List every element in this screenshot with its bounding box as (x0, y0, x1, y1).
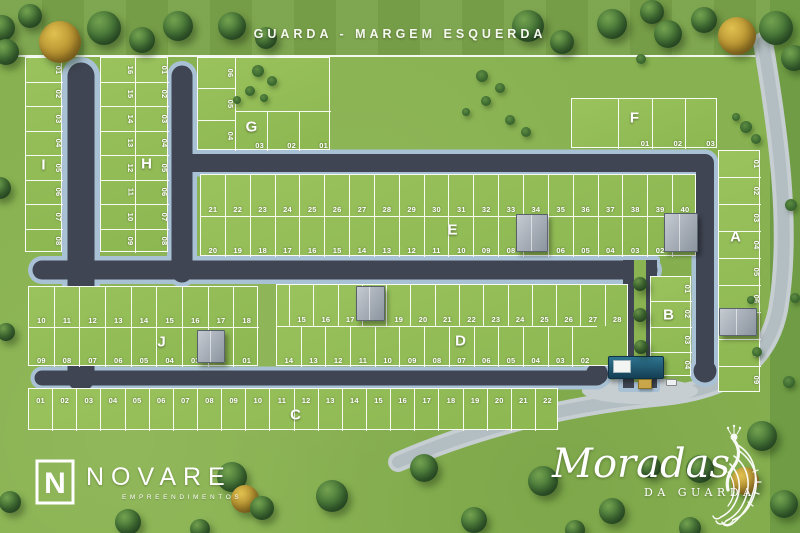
lot-number: 23 (258, 205, 267, 214)
lot-number: 21 (519, 396, 528, 405)
lot: 03 (76, 389, 100, 431)
novare-logo-icon: N (34, 458, 76, 506)
lot-number: 37 (606, 205, 615, 214)
lot-number: 04 (109, 396, 118, 405)
lot-number: 16 (191, 316, 200, 325)
lot: 05 (498, 327, 523, 367)
lot: 16 (390, 389, 414, 431)
lot-number: 25 (308, 205, 317, 214)
lot: 05 (719, 258, 761, 285)
lot: 06 (26, 180, 63, 205)
block-E: 2122232425262728293031323334353637383940… (200, 174, 696, 256)
lot-row: 1615141312111009 (101, 58, 135, 253)
lot-number: 08 (54, 237, 63, 246)
bush (462, 108, 470, 116)
tree (759, 11, 793, 45)
block-I: 0102030405060708I (25, 57, 62, 252)
lot: 15 (366, 389, 390, 431)
lot-row: 060504 (198, 58, 236, 151)
lot: 15 (324, 217, 349, 257)
lot-number: 20 (209, 246, 218, 255)
lot: 28 (374, 175, 399, 216)
house (719, 308, 757, 336)
lot: 09 (473, 217, 498, 257)
lot-number: 16 (322, 315, 331, 324)
lot-row: 15161719202122232425262728 (289, 285, 629, 326)
lot: 03 (26, 106, 63, 131)
lot-number: 08 (433, 356, 442, 365)
lot: 22 (459, 285, 483, 326)
lot-number: 09 (229, 396, 238, 405)
lot: 29 (399, 175, 424, 216)
lot-number: 01 (752, 160, 761, 169)
lot-number: 17 (283, 246, 292, 255)
lot-number: 16 (308, 246, 317, 255)
lot: 21 (201, 175, 225, 216)
lot: 38 (622, 175, 647, 216)
lot-number: 09 (126, 237, 135, 246)
lot-number: 23 (492, 315, 501, 324)
lot-number: 10 (253, 396, 262, 405)
lot-number: 24 (516, 315, 525, 324)
lot-number: 03 (54, 114, 63, 123)
bush (505, 115, 515, 125)
lot-number: 04 (54, 139, 63, 148)
lot-number: 19 (471, 396, 480, 405)
lot-number: 22 (467, 315, 476, 324)
lot: 04 (598, 217, 623, 257)
lot-number: 06 (54, 188, 63, 197)
tree (115, 509, 141, 533)
tree (18, 4, 42, 28)
bush (252, 65, 264, 77)
lot-number: 06 (114, 356, 123, 365)
lot: 19 (225, 217, 250, 257)
lot-number: 03 (84, 396, 93, 405)
block-D: 1516171920212223242526272814131211100908… (276, 284, 628, 366)
lot: 20 (201, 217, 225, 257)
lot: 39 (647, 175, 672, 216)
block-label-I: I (41, 157, 46, 174)
lot-number: 33 (507, 205, 516, 214)
lot: 01 (136, 58, 169, 82)
lot: 13 (318, 389, 342, 431)
block-C: 0102030405060708091011121314151617181920… (28, 388, 558, 430)
lot-number: 26 (333, 205, 342, 214)
lot: 04 (100, 389, 124, 431)
lot-number: 13 (309, 356, 318, 365)
median-tree (633, 277, 647, 291)
lot-number: 06 (226, 69, 235, 78)
lot-number: 01 (36, 396, 45, 405)
median-tree (633, 308, 647, 322)
house (197, 330, 225, 363)
novare-name: NOVARE (86, 463, 242, 492)
novare-logo: N NOVARE EMPREENDIMENTOS (34, 458, 242, 506)
lot-number: 07 (54, 212, 63, 221)
lot-number: 30 (432, 205, 441, 214)
lot: 23 (250, 175, 275, 216)
lot-number: 02 (581, 356, 590, 365)
lot-number: 28 (613, 315, 622, 324)
lot-number: 19 (394, 315, 403, 324)
lot-number: 13 (326, 396, 335, 405)
lot-number: 01 (160, 65, 169, 74)
lot: 05 (131, 328, 157, 367)
lot-number: 03 (556, 356, 565, 365)
tree (691, 7, 717, 33)
house (516, 214, 548, 252)
lot: 07 (136, 204, 169, 229)
lot-number: 35 (556, 205, 565, 214)
lot-number: 06 (556, 246, 565, 255)
lot-number: 05 (133, 396, 142, 405)
lot-number: 02 (60, 396, 69, 405)
lot-number: 22 (543, 396, 552, 405)
block-label-D: D (455, 333, 467, 350)
lot-number: 05 (752, 268, 761, 277)
tree (781, 45, 800, 71)
lot: 32 (473, 175, 498, 216)
lot-number: 04 (226, 131, 235, 140)
bush (233, 96, 241, 104)
lot: 09 (101, 229, 135, 254)
lot-number: 05 (581, 246, 590, 255)
tree (87, 11, 121, 45)
lot-row: 0102030405060708 (26, 58, 63, 253)
lot-number: 11 (359, 356, 367, 365)
lot: 06 (548, 217, 573, 257)
lot-number: 14 (140, 316, 149, 325)
lot-number: 06 (160, 188, 169, 197)
bush (732, 113, 740, 121)
lot-number: 36 (581, 205, 590, 214)
lot-number: 04 (160, 139, 169, 148)
lot (572, 99, 618, 149)
lot: 16 (101, 58, 135, 82)
lot-number: 01 (683, 285, 692, 294)
lot: 14 (101, 106, 135, 131)
lot: 13 (105, 287, 131, 327)
lot-number: 13 (114, 316, 123, 325)
lot-number: 15 (333, 246, 342, 255)
peacock-logo-icon (698, 424, 783, 533)
lot-number: 05 (140, 356, 149, 365)
lot-number: 01 (242, 356, 251, 365)
lot-number: 01 (319, 141, 328, 150)
lot-number: 04 (752, 241, 761, 250)
lot: 04 (198, 120, 235, 151)
lot-number: 22 (233, 205, 242, 214)
lot-number: 10 (457, 246, 466, 255)
lot-number: 10 (126, 212, 135, 221)
lot-number: 11 (432, 246, 440, 255)
lot-row: 101112131415161718 (29, 287, 259, 327)
lot-number: 03 (631, 246, 640, 255)
lot: 06 (149, 389, 173, 431)
lot-number: 19 (233, 246, 242, 255)
lot-number: 27 (358, 205, 367, 214)
tree (654, 20, 682, 48)
lot: 34 (523, 175, 548, 216)
novare-text: NOVARE EMPREENDIMENTOS (86, 463, 242, 501)
lot-number: 14 (284, 356, 293, 365)
lot: 16 (299, 217, 324, 257)
lot: 24 (275, 175, 300, 216)
lot: 08 (26, 229, 63, 254)
lot: 28 (605, 285, 629, 326)
lot: 05 (573, 217, 598, 257)
lot: 08 (54, 328, 80, 367)
lot: 09 (29, 328, 54, 367)
lot: 36 (573, 175, 598, 216)
lot: 02 (136, 82, 169, 107)
lot: 02 (267, 112, 299, 151)
lot-number: 17 (346, 315, 355, 324)
lot: 17 (414, 389, 438, 431)
lot-number: 08 (63, 356, 72, 365)
lot-number: 15 (165, 316, 174, 325)
lot-number: 27 (589, 315, 598, 324)
lot: 27 (580, 285, 604, 326)
lot: 05 (125, 389, 149, 431)
lot-number: 05 (507, 356, 516, 365)
novare-icon-letter: N (44, 467, 66, 500)
lot: 21 (511, 389, 535, 431)
house (664, 213, 698, 252)
lot-number: 10 (37, 316, 46, 325)
lot: 24 (508, 285, 532, 326)
block-label-H: H (141, 156, 153, 173)
lot: 06 (474, 327, 499, 367)
lot-number: 20 (495, 396, 504, 405)
tree (129, 27, 155, 53)
lot: 16 (313, 285, 337, 326)
lot: 25 (299, 175, 324, 216)
tree (565, 520, 585, 533)
lot: 19 (463, 389, 487, 431)
lot: 27 (349, 175, 374, 216)
bush (752, 347, 762, 357)
lot-number: 07 (181, 396, 190, 405)
lot-number: 03 (255, 141, 264, 150)
lot: 14 (131, 287, 157, 327)
lot-number: 14 (126, 114, 135, 123)
tree (250, 496, 274, 520)
block-F: 010203F (571, 98, 717, 148)
lot-number: 05 (160, 163, 169, 172)
lot-number: 15 (374, 396, 383, 405)
tree (0, 491, 21, 513)
lot: 02 (26, 82, 63, 107)
bush (747, 296, 755, 304)
lot-number: 16 (126, 65, 135, 74)
lot-number: 08 (160, 237, 169, 246)
lot: 30 (424, 175, 449, 216)
lot-number: 11 (278, 396, 286, 405)
lot-number: 17 (217, 316, 226, 325)
lot: 14 (349, 217, 374, 257)
bush (785, 199, 797, 211)
tree (410, 454, 438, 482)
lot-number: 03 (752, 214, 761, 223)
lot-number: 03 (160, 114, 169, 123)
block-label-G: G (246, 119, 259, 136)
lot-number: 26 (564, 315, 573, 324)
lot: 31 (448, 175, 473, 216)
lot: 15 (290, 285, 313, 326)
lot-number: 02 (287, 141, 296, 150)
block-label-B: B (663, 307, 675, 324)
bush (636, 54, 646, 64)
lot-number: 01 (54, 65, 63, 74)
tree (599, 498, 625, 524)
bush (740, 121, 752, 133)
lot: 03 (685, 99, 718, 149)
block-label-F: F (630, 110, 640, 127)
lot-number: 12 (126, 163, 135, 172)
lot: 02 (652, 99, 685, 149)
lot: 18 (233, 287, 259, 327)
lot-number: 09 (408, 356, 417, 365)
lot-number: 24 (283, 205, 292, 214)
lot-number: 07 (160, 212, 169, 221)
lot-number: 15 (126, 90, 135, 99)
lot: 03 (622, 217, 647, 257)
lot-number: 01 (641, 139, 650, 148)
lot: 09 (719, 366, 761, 393)
bush (495, 83, 505, 93)
lot: 11 (101, 180, 135, 205)
tree (163, 11, 193, 41)
lot: 07 (79, 328, 105, 367)
tree (640, 0, 664, 24)
lot: 26 (556, 285, 580, 326)
lot: 23 (483, 285, 507, 326)
lot-number: 21 (209, 205, 218, 214)
lot-number: 17 (422, 396, 431, 405)
lot: 18 (250, 217, 275, 257)
lot: 04 (26, 131, 63, 156)
lot: 01 (719, 151, 761, 177)
lot-number: 02 (673, 139, 682, 148)
lot-number: 06 (157, 396, 166, 405)
lot-number: 18 (258, 246, 267, 255)
lot-number: 31 (457, 205, 466, 214)
lot-number: 18 (242, 316, 251, 325)
lot: 03 (136, 106, 169, 131)
lot-number: 15 (297, 315, 306, 324)
lot-number: 11 (126, 188, 135, 196)
block-H: 16151413121110090102030405060708H (100, 57, 168, 252)
lot: 25 (532, 285, 556, 326)
lot: 03 (719, 204, 761, 231)
lot-number: 02 (160, 90, 169, 99)
lot-number: 13 (382, 246, 391, 255)
lot-row: 2122232425262728293031323334353637383940 (201, 175, 697, 216)
lot: 09 (399, 327, 424, 367)
lot-number: 13 (126, 139, 135, 148)
lot: 12 (399, 217, 424, 257)
lot-number: 02 (683, 310, 692, 319)
lot: 15 (101, 82, 135, 107)
lot: 08 (136, 229, 169, 254)
lot: 05 (198, 88, 235, 119)
lot-number: 16 (398, 396, 407, 405)
house (356, 286, 385, 321)
lot: 22 (535, 389, 559, 431)
lot-number: 25 (540, 315, 549, 324)
lot: 10 (29, 287, 54, 327)
lot-number: 04 (683, 361, 692, 370)
lot: 13 (301, 327, 326, 367)
lot-number: 04 (606, 246, 615, 255)
bush (260, 94, 268, 102)
lot: 03 (548, 327, 573, 367)
block-label-C: C (290, 407, 302, 424)
bush (267, 76, 277, 86)
tree (718, 17, 756, 55)
lot: 02 (719, 177, 761, 204)
car (666, 379, 677, 386)
site-plan: 0102030405060809A01020304B01020304050607… (0, 0, 800, 533)
lot: 06 (105, 328, 131, 367)
lot-number: 12 (334, 356, 343, 365)
lot-number: 11 (63, 316, 71, 325)
cul-de-sac (694, 360, 717, 383)
lot: 08 (424, 327, 449, 367)
bush (481, 96, 491, 106)
lot: 14 (342, 389, 366, 431)
lot: 18 (438, 389, 462, 431)
tree (461, 507, 487, 533)
lot-number: 07 (457, 356, 466, 365)
lot-number: 04 (531, 356, 540, 365)
lot: 35 (548, 175, 573, 216)
lot: 07 (26, 204, 63, 229)
lot: 16 (182, 287, 208, 327)
lot: 13 (374, 217, 399, 257)
tree (190, 519, 210, 533)
lot-number: 08 (205, 396, 214, 405)
lot: 02 (572, 327, 597, 367)
block-label-J: J (157, 334, 166, 351)
lot: 12 (325, 327, 350, 367)
lot: 01 (29, 389, 52, 431)
lot: 19 (386, 285, 410, 326)
lot: 40 (672, 175, 697, 216)
lot: 17 (208, 287, 234, 327)
lot: 03 (651, 327, 692, 352)
lot: 17 (275, 217, 300, 257)
block-label-E: E (447, 222, 458, 239)
lot-number: 04 (165, 356, 174, 365)
lot: 12 (101, 155, 135, 180)
lot-number: 10 (383, 356, 392, 365)
lot: 11 (424, 217, 449, 257)
lot: 22 (225, 175, 250, 216)
lot: 37 (598, 175, 623, 216)
lot: 10 (245, 389, 269, 431)
lot: 11 (350, 327, 375, 367)
lot-number: 34 (532, 205, 541, 214)
bush (521, 127, 531, 137)
lot-number: 05 (54, 163, 63, 172)
lot: 11 (54, 287, 80, 327)
lot: 20 (410, 285, 434, 326)
lot-number: 38 (631, 205, 640, 214)
lot: 01 (299, 112, 331, 151)
